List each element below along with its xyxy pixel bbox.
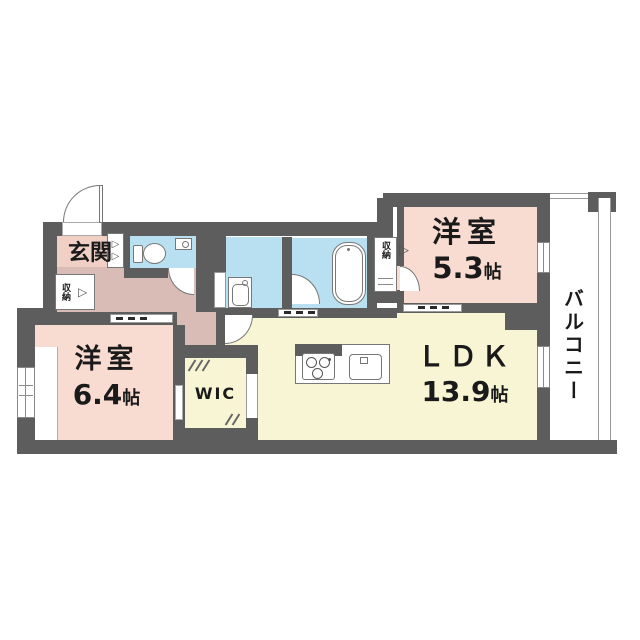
- entrance-door-sill: [62, 222, 102, 236]
- window-tick: [19, 395, 33, 396]
- sink-icon: [349, 354, 382, 380]
- shelf-line: [378, 278, 393, 279]
- floorplan: ▷ ▷ 収納 ▷ 収納 ▷ 玄関 洋室 5.3帖 洋室: [0, 0, 640, 640]
- window-glass-line: [543, 243, 544, 272]
- wall-segment: [246, 418, 258, 428]
- wall-segment: [383, 193, 550, 207]
- sliding-door-dash: [284, 311, 291, 314]
- bedroom-5-3-size: 5.3帖: [397, 251, 537, 289]
- wall-segment: [17, 440, 617, 454]
- toilet-hand-sink: [175, 238, 192, 250]
- sliding-door-dash: [418, 306, 425, 309]
- bedroom-5-3-label: 洋室: [397, 211, 537, 249]
- sliding-door-dash: [430, 306, 437, 309]
- folding-door-chevron-icon: ▷: [78, 286, 87, 298]
- window-glass-line: [25, 368, 26, 417]
- bedroom-6-4-window: [17, 367, 35, 418]
- wall-segment: [216, 318, 225, 347]
- entrance-door-arc: [63, 185, 100, 222]
- bedroom-5-3-storage: 収納: [374, 237, 397, 292]
- window-tick: [19, 385, 33, 386]
- balcony-rail-right: [598, 198, 611, 440]
- sliding-door-dash: [140, 317, 147, 320]
- stove-icon: [302, 353, 335, 380]
- wic-label: WIC: [185, 382, 246, 404]
- sliding-door-dash: [442, 306, 449, 309]
- wall-segment: [505, 303, 548, 330]
- washbasin-icon: [228, 277, 252, 308]
- entrance-door-leaf: [99, 185, 103, 223]
- washroom-door: [214, 272, 226, 308]
- ldk-label: ＬＤＫ: [390, 336, 540, 374]
- ldk-size: 13.9帖: [385, 375, 545, 411]
- hallway-storage: 収納 ▷: [55, 274, 95, 310]
- bedroom-6-4-size: 6.4帖: [40, 378, 173, 414]
- bedroom-6-4-label: 洋室: [40, 338, 173, 374]
- wall-segment: [246, 358, 258, 374]
- sliding-door-dash: [128, 317, 135, 320]
- toilet-bowl-icon: [143, 243, 166, 264]
- wall-segment: [173, 325, 185, 440]
- balcony-rail-top: [550, 193, 588, 199]
- wall-segment: [124, 236, 130, 268]
- hallway-storage-label: 収納: [59, 283, 72, 301]
- bedroom-6-4-wic-door: [175, 385, 183, 420]
- wall-segment: [124, 268, 168, 278]
- bedroom-5-3-storage-label: 収納: [379, 241, 392, 259]
- wall-segment: [177, 428, 258, 440]
- wall-segment: [374, 292, 404, 303]
- wall-segment: [282, 237, 292, 310]
- wall-segment: [177, 345, 258, 358]
- sliding-door-dash: [296, 311, 303, 314]
- toilet-tank: [133, 245, 143, 263]
- sliding-door-dash: [116, 317, 123, 320]
- shelf-line: [378, 284, 393, 285]
- sliding-door-dash: [308, 311, 315, 314]
- balcony-label: バルコニー: [551, 250, 595, 440]
- bathtub-icon: [332, 242, 366, 305]
- genkan-label: 玄関: [56, 236, 124, 266]
- wic-opening: [246, 374, 258, 418]
